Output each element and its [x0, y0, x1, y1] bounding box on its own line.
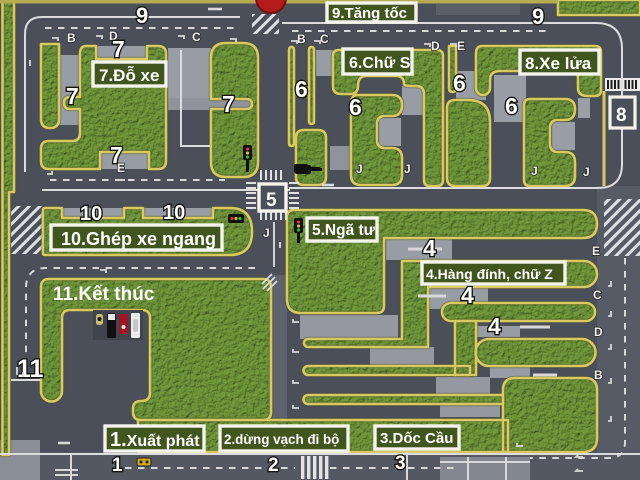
svg-text:8.Xe lửa: 8.Xe lửa: [525, 54, 592, 73]
svg-text:J: J: [404, 162, 411, 176]
svg-text:6.Chữ S: 6.Chữ S: [349, 55, 411, 72]
svg-text:E: E: [592, 244, 600, 258]
svg-text:5: 5: [266, 190, 277, 211]
svg-text:1: 1: [112, 455, 123, 476]
svg-text:10: 10: [163, 202, 185, 224]
svg-text:J: J: [263, 226, 270, 240]
svg-text:C: C: [320, 32, 329, 46]
svg-text:B: B: [594, 368, 603, 382]
svg-text:4.Hàng đính, chữ Z: 4.Hàng đính, chữ Z: [426, 266, 553, 282]
svg-text:10.Ghép xe ngang: 10.Ghép xe ngang: [61, 229, 216, 249]
svg-text:6: 6: [349, 94, 362, 120]
svg-text:C: C: [593, 288, 602, 302]
svg-text:7: 7: [222, 91, 235, 117]
svg-text:3: 3: [395, 453, 406, 474]
svg-text:2.dừng vạch đi bộ: 2.dừng vạch đi bộ: [224, 432, 339, 447]
svg-text:E: E: [457, 39, 465, 53]
svg-text:B: B: [67, 31, 76, 45]
svg-text:1.Xuất phát: 1.Xuất phát: [110, 429, 200, 451]
svg-text:4: 4: [488, 313, 501, 339]
svg-text:C: C: [192, 30, 201, 44]
svg-text:7: 7: [66, 83, 79, 109]
svg-text:8: 8: [616, 105, 627, 126]
svg-text:10: 10: [80, 203, 102, 225]
svg-text:11: 11: [17, 355, 44, 383]
svg-text:6: 6: [453, 70, 466, 96]
svg-text:7: 7: [112, 36, 125, 62]
svg-text:D: D: [431, 39, 440, 53]
svg-text:J: J: [356, 162, 363, 176]
svg-text:5.Ngã tư: 5.Ngã tư: [312, 222, 376, 239]
svg-text:7: 7: [110, 142, 123, 168]
svg-text:J: J: [531, 164, 538, 178]
svg-text:9: 9: [532, 4, 544, 29]
svg-text:4: 4: [423, 235, 436, 261]
svg-text:4: 4: [461, 282, 474, 308]
svg-text:2: 2: [268, 455, 279, 476]
svg-text:7.Đỗ xe: 7.Đỗ xe: [99, 66, 159, 85]
svg-text:9: 9: [136, 3, 148, 28]
svg-text:6: 6: [295, 76, 308, 102]
svg-text:B: B: [297, 32, 306, 46]
svg-text:11.Kết thúc: 11.Kết thúc: [53, 284, 155, 305]
svg-text:J: J: [583, 165, 590, 179]
svg-text:D: D: [594, 325, 603, 339]
svg-text:3.Dốc Cầu: 3.Dốc Cầu: [380, 430, 453, 447]
svg-text:6: 6: [505, 93, 518, 119]
svg-text:9.Tăng tốc: 9.Tăng tốc: [332, 5, 407, 22]
